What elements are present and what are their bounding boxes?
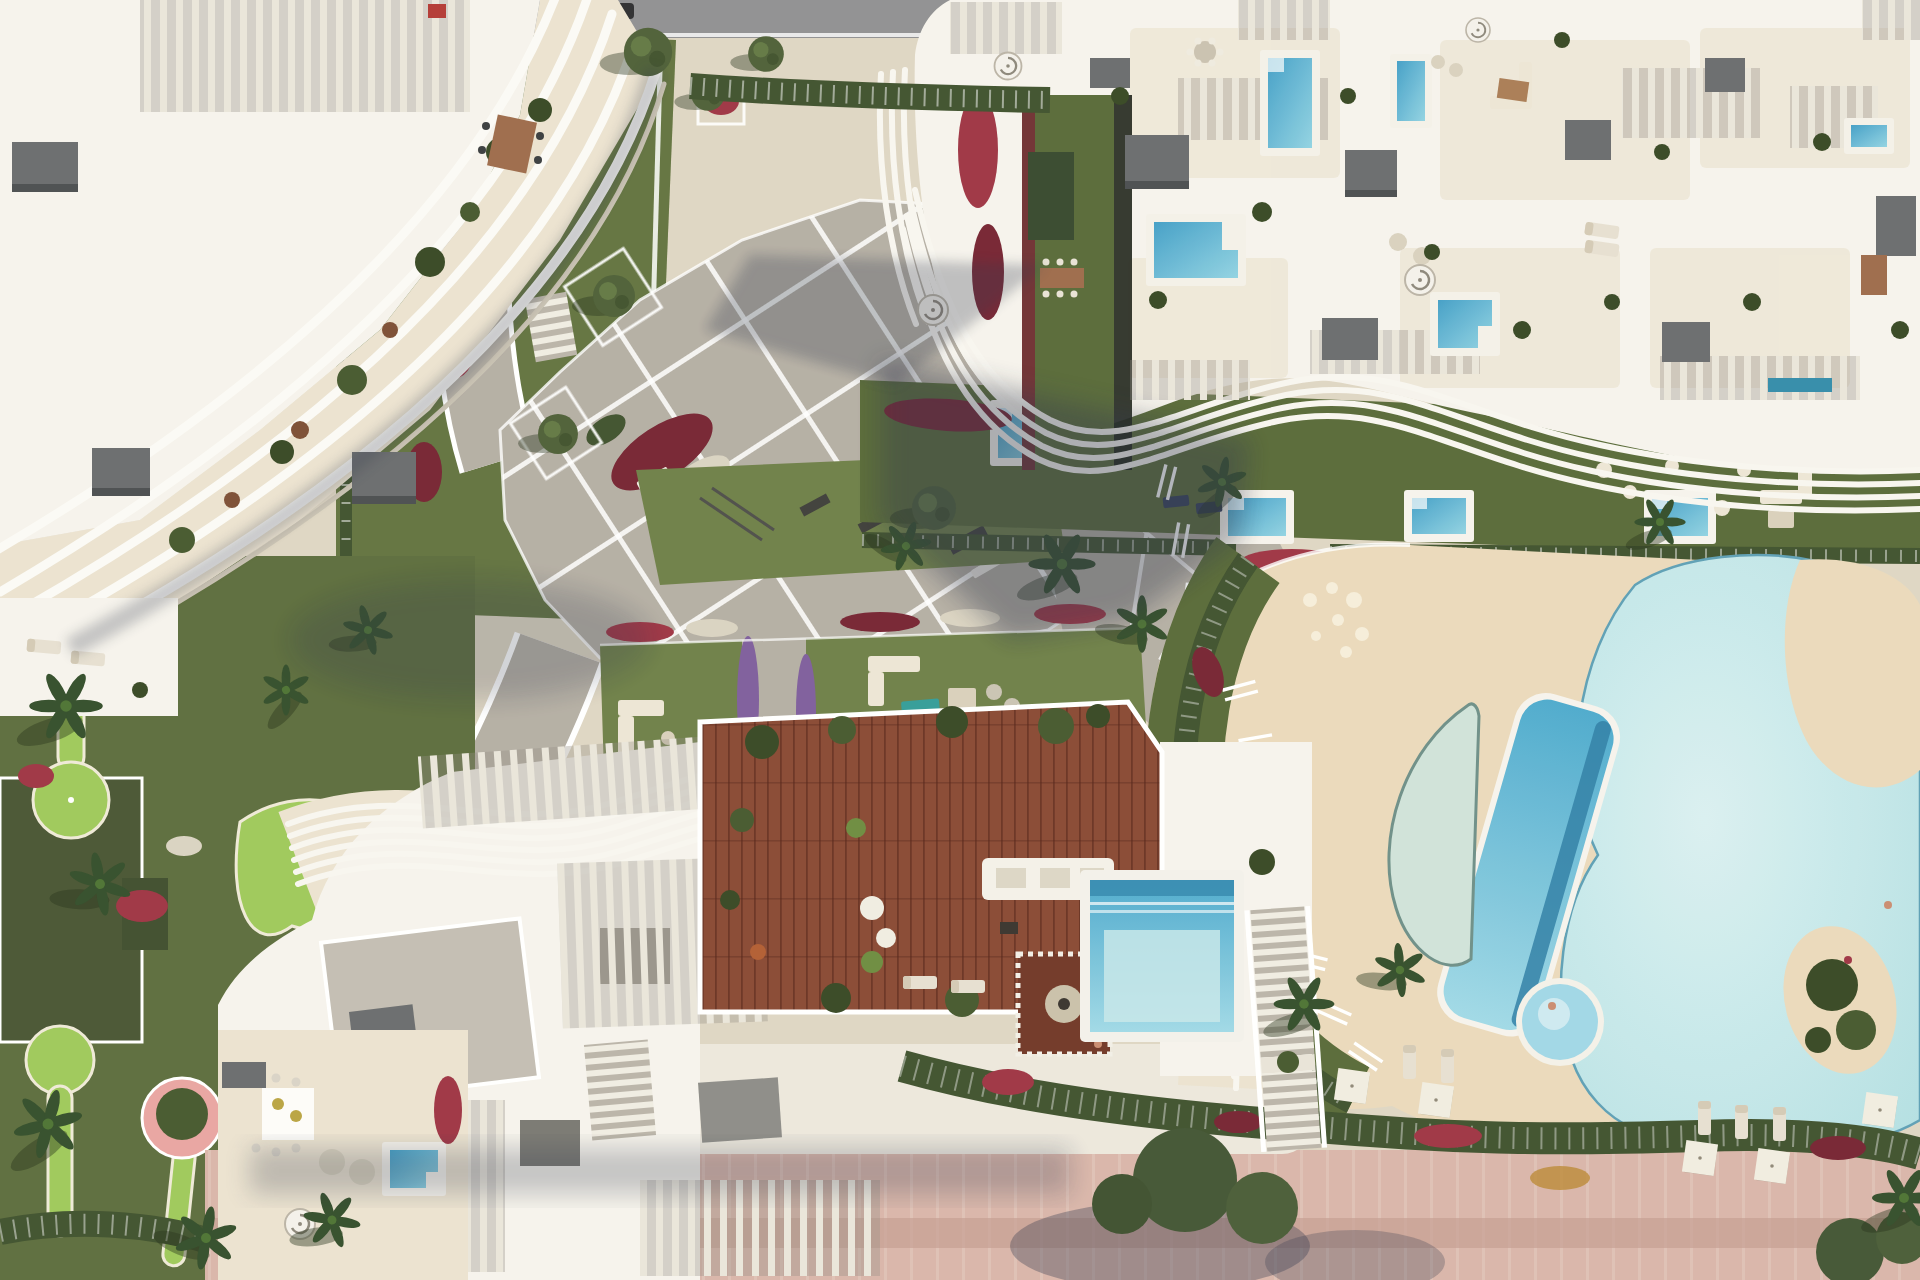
light-effects — [0, 0, 1920, 1280]
render-canvas — [0, 0, 1920, 1280]
aerial-masterplan-render — [0, 0, 1920, 1280]
sunlight-wash — [0, 0, 1920, 1280]
